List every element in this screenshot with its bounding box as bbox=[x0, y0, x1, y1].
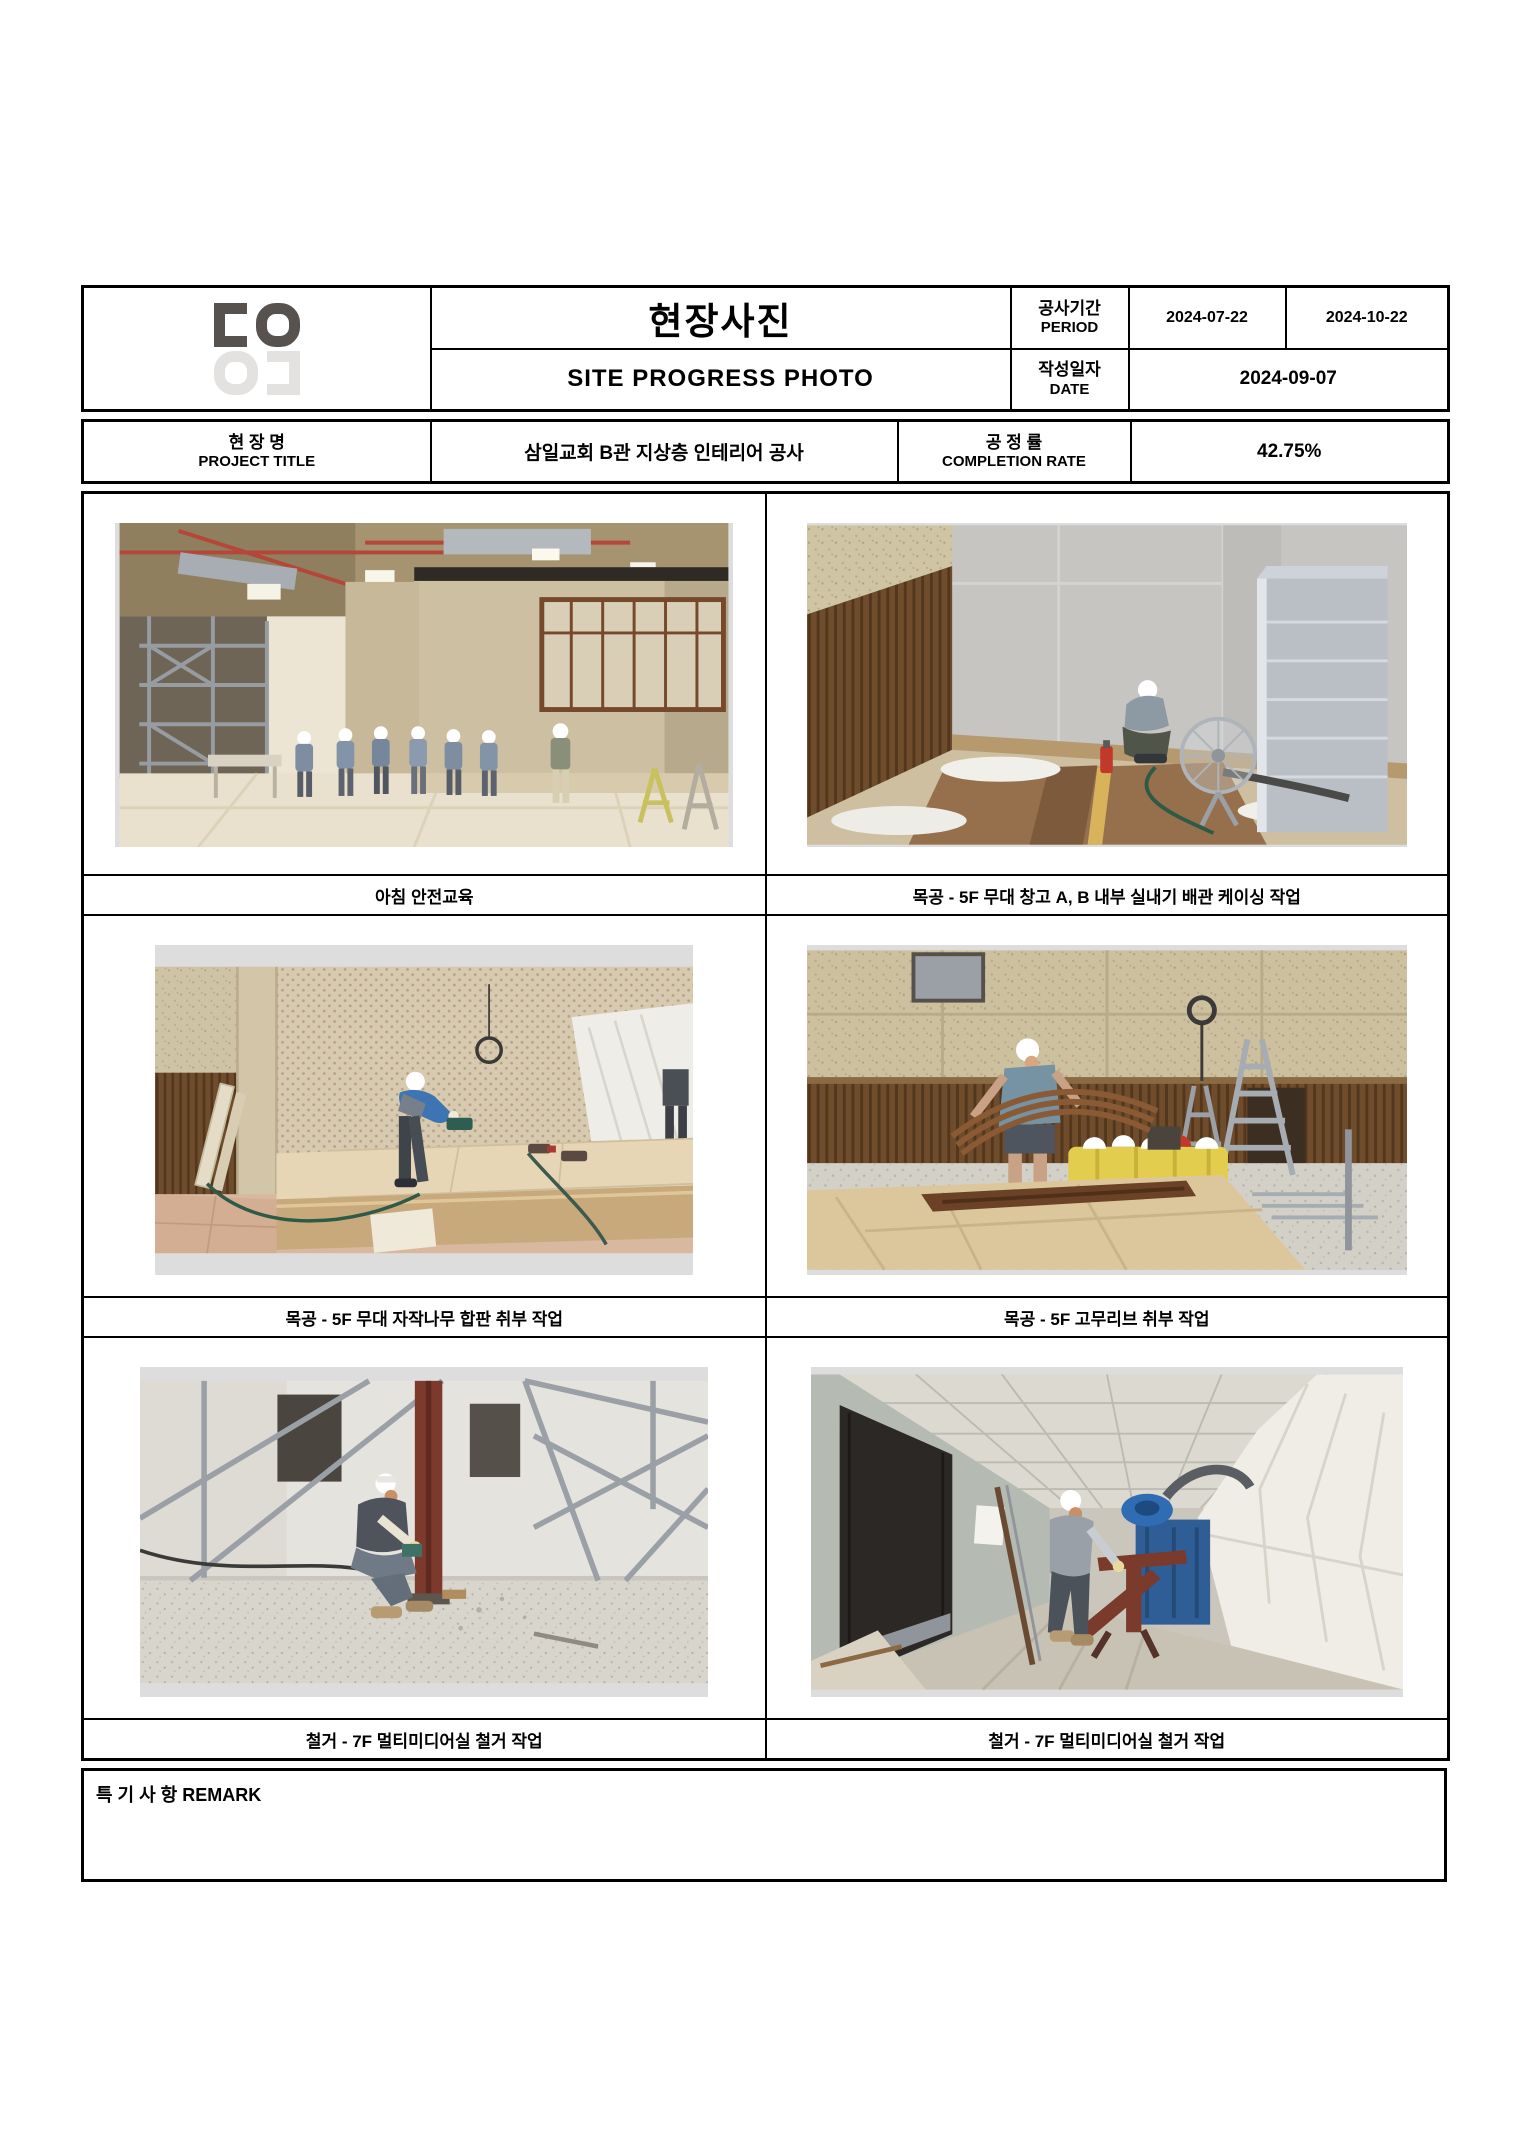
photo-storage-room-casing-work bbox=[807, 523, 1407, 847]
project-title-label: 현 장 명 PROJECT TITLE bbox=[83, 421, 431, 483]
logo-o-glyph-mirrored bbox=[214, 351, 258, 395]
photo-stage-plywood-work bbox=[155, 945, 693, 1275]
photo-cell-5 bbox=[83, 1337, 766, 1719]
period-label-en: PERIOD bbox=[1012, 319, 1128, 338]
photo-rubber-rib-work bbox=[807, 945, 1407, 1275]
project-title-label-kr: 현 장 명 bbox=[84, 432, 430, 453]
photo-caption-3: 목공 - 5F 무대 자작나무 합판 취부 작업 bbox=[83, 1297, 766, 1337]
company-logo bbox=[84, 303, 430, 395]
photo-caption-4: 목공 - 5F 고무리브 취부 작업 bbox=[766, 1297, 1449, 1337]
period-label: 공사기간 PERIOD bbox=[1011, 287, 1129, 349]
logo-glyphs-mirrored bbox=[214, 351, 300, 395]
period-label-kr: 공사기간 bbox=[1012, 298, 1128, 319]
logo-o-glyph bbox=[256, 303, 300, 347]
photo-cell-2 bbox=[766, 493, 1449, 876]
period-start-date: 2024-07-22 bbox=[1129, 287, 1286, 349]
header-table: 현장사진 공사기간 PERIOD 2024-07-22 2024-10-22 S… bbox=[81, 285, 1450, 412]
logo-d-glyph bbox=[214, 303, 247, 347]
logo-cell bbox=[83, 287, 431, 411]
document-title-kr: 현장사진 bbox=[431, 287, 1011, 349]
document-title-en: SITE PROGRESS PHOTO bbox=[431, 349, 1011, 411]
report-date: 2024-09-07 bbox=[1129, 349, 1449, 411]
photo-caption-1: 아침 안전교육 bbox=[83, 875, 766, 915]
photo-grid: 아침 안전교육 목공 - 5F 무대 창고 A, B 내부 실내기 배관 케이싱… bbox=[81, 491, 1450, 1761]
photo-caption-2: 목공 - 5F 무대 창고 A, B 내부 실내기 배관 케이싱 작업 bbox=[766, 875, 1449, 915]
photo-morning-safety-training bbox=[115, 523, 733, 847]
project-title-label-en: PROJECT TITLE bbox=[84, 453, 430, 472]
photo-cell-1 bbox=[83, 493, 766, 876]
remark-label: 특 기 사 항 REMARK bbox=[84, 1771, 1444, 1817]
photo-caption-6: 철거 - 7F 멀티미디어실 철거 작업 bbox=[766, 1719, 1449, 1760]
photo-cell-6 bbox=[766, 1337, 1449, 1719]
logo-d-glyph-mirrored bbox=[267, 351, 300, 395]
logo-glyphs-dark bbox=[214, 303, 300, 347]
site-progress-report: 현장사진 공사기간 PERIOD 2024-07-22 2024-10-22 S… bbox=[81, 285, 1447, 1889]
project-title-value: 삼일교회 B관 지상층 인테리어 공사 bbox=[431, 421, 898, 483]
completion-rate-label-en: COMPLETION RATE bbox=[899, 453, 1130, 472]
project-table: 현 장 명 PROJECT TITLE 삼일교회 B관 지상층 인테리어 공사 … bbox=[81, 419, 1450, 484]
photo-cell-4 bbox=[766, 915, 1449, 1297]
period-end-date: 2024-10-22 bbox=[1286, 287, 1449, 349]
completion-rate-label: 공 정 률 COMPLETION RATE bbox=[898, 421, 1131, 483]
completion-rate-label-kr: 공 정 률 bbox=[899, 432, 1130, 453]
remark-table: 특 기 사 항 REMARK bbox=[81, 1768, 1447, 1882]
date-label: 작성일자 DATE bbox=[1011, 349, 1129, 411]
photo-corridor-demolition bbox=[811, 1367, 1403, 1697]
date-label-kr: 작성일자 bbox=[1012, 359, 1128, 380]
photo-cell-3 bbox=[83, 915, 766, 1297]
photo-caption-5: 철거 - 7F 멀티미디어실 철거 작업 bbox=[83, 1719, 766, 1760]
completion-rate-value: 42.75% bbox=[1131, 421, 1449, 483]
photo-demolition-steel-column bbox=[140, 1367, 708, 1697]
remark-cell: 특 기 사 항 REMARK bbox=[83, 1770, 1446, 1881]
date-label-en: DATE bbox=[1012, 381, 1128, 400]
